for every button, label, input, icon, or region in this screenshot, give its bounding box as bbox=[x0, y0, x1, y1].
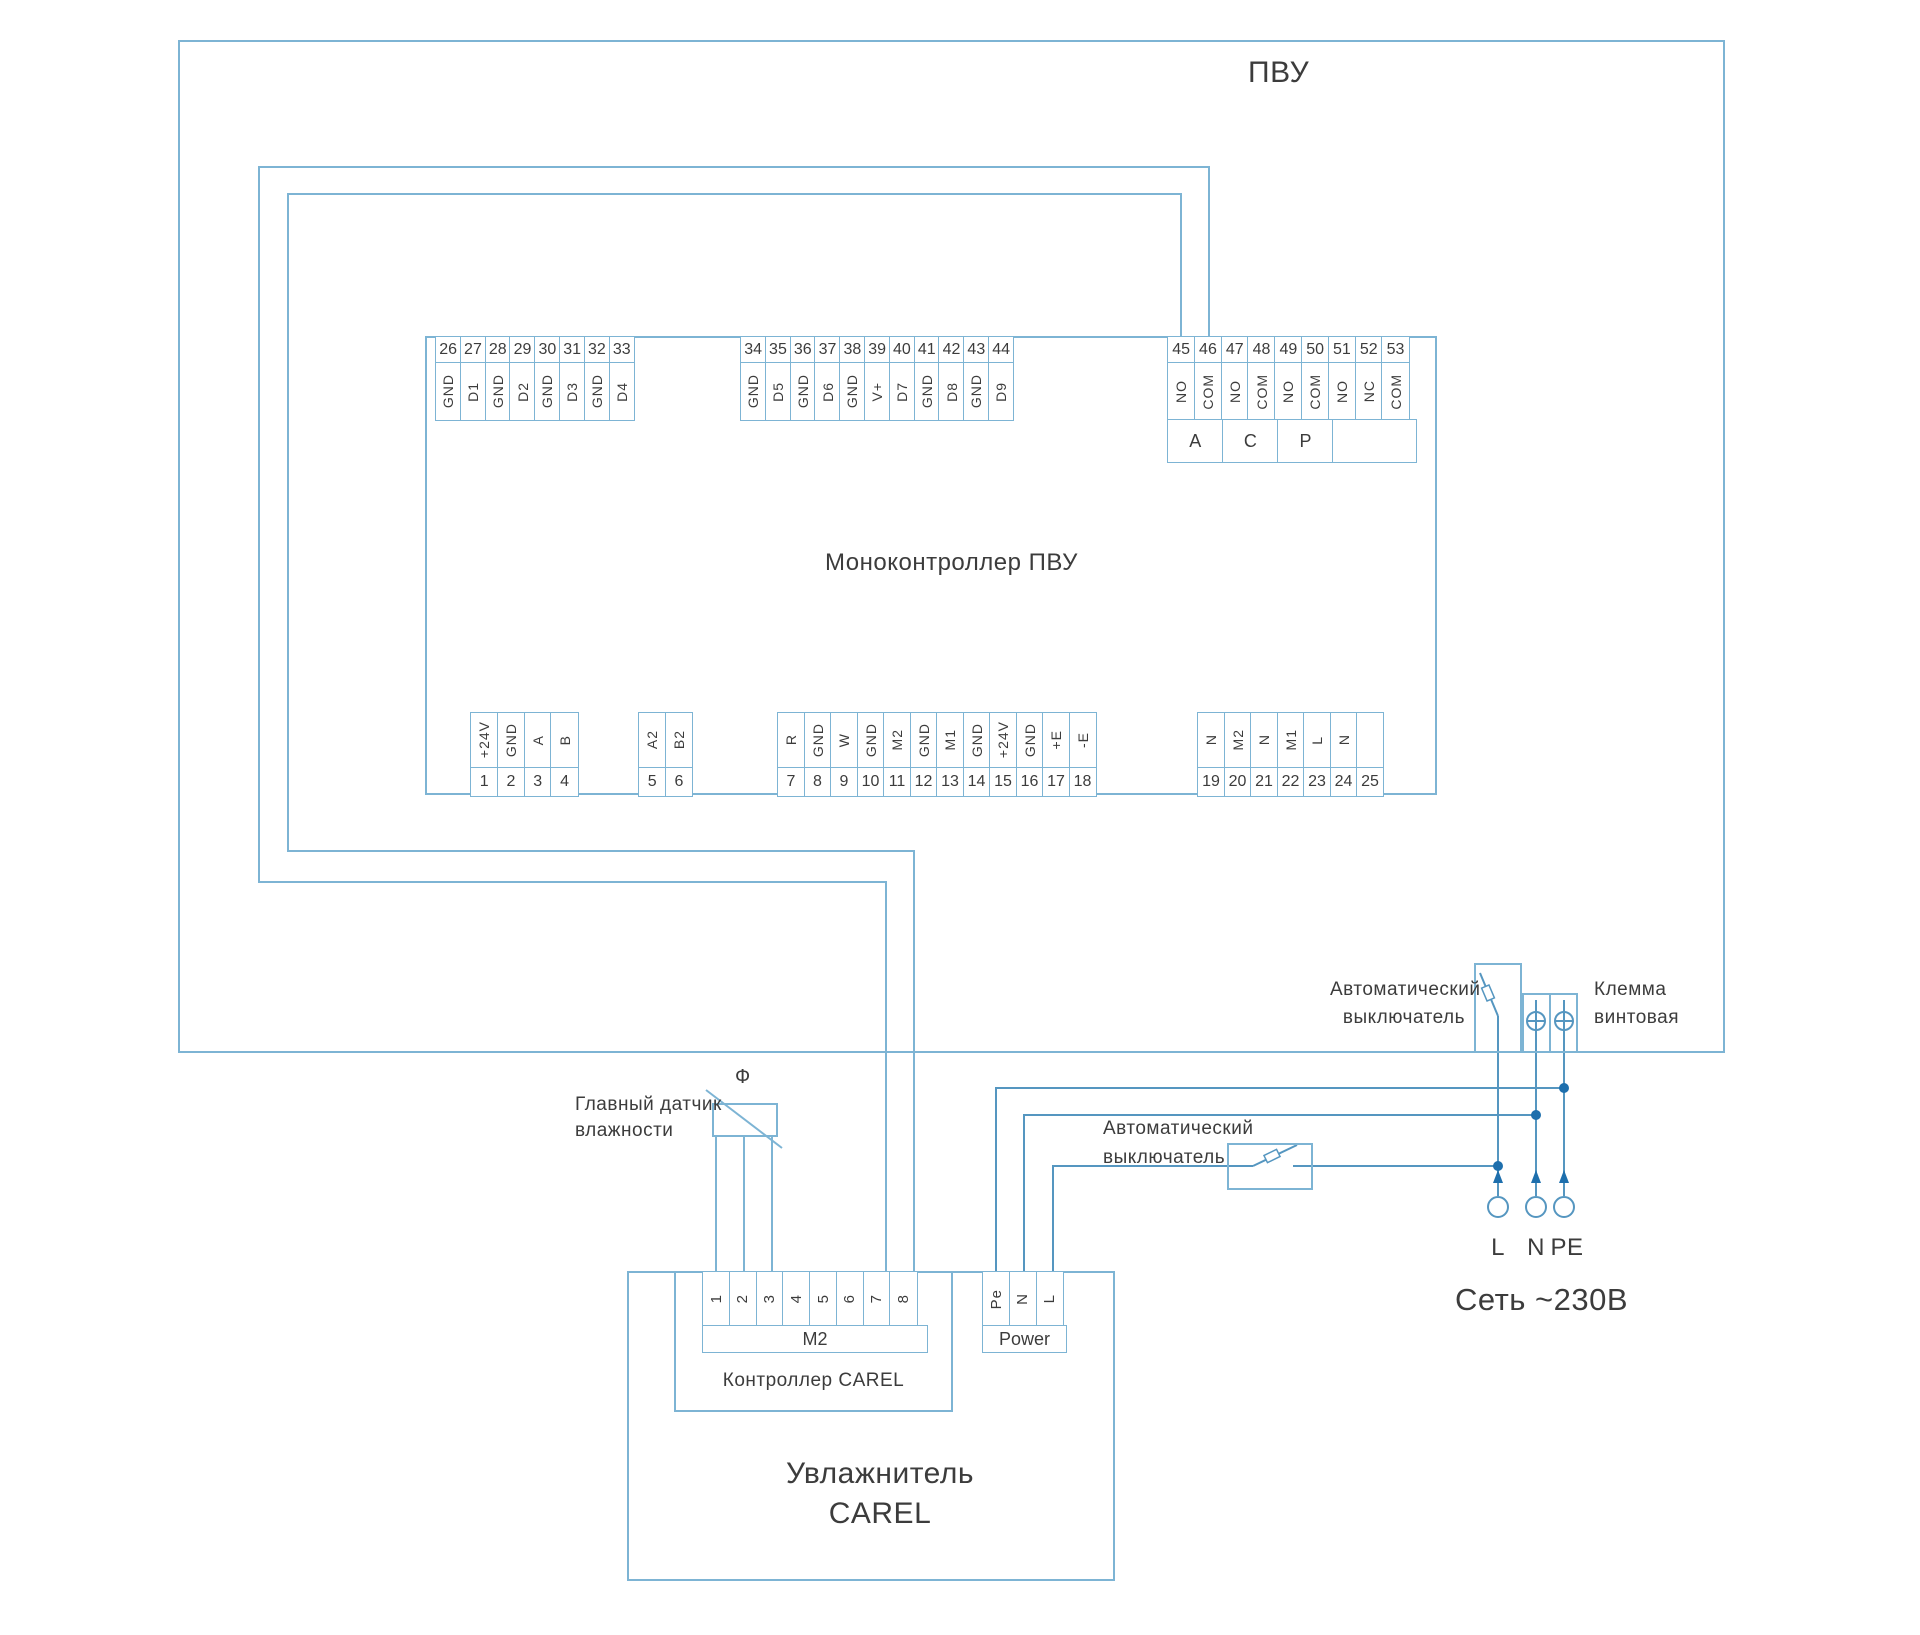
terminal-label: N bbox=[1198, 713, 1224, 768]
terminal-number-text: 10 bbox=[862, 773, 880, 791]
terminal-32: 32GND bbox=[584, 336, 610, 421]
terminal-label-text: GND bbox=[440, 374, 456, 408]
terminal-label: M2 bbox=[884, 713, 910, 768]
terminal-50: 50COM bbox=[1301, 336, 1329, 421]
terminal-label: GND bbox=[911, 713, 937, 768]
terminal-number-text: 41 bbox=[918, 341, 936, 359]
terminal-label-text: L bbox=[1041, 1294, 1058, 1303]
terminal-label-text: 3 bbox=[761, 1294, 778, 1303]
terminal-label-text: D6 bbox=[820, 382, 836, 402]
terminal-18: -E18 bbox=[1069, 712, 1097, 797]
terminal-label: GND bbox=[964, 363, 988, 420]
terminal-number-text: 4 bbox=[560, 773, 569, 791]
terminal-number-text: 16 bbox=[1021, 773, 1039, 791]
relay-group-A: A bbox=[1167, 419, 1224, 463]
junction-dot-l bbox=[1493, 1161, 1503, 1171]
humidity-sensor-symbol: Ф bbox=[735, 1066, 751, 1089]
terminal-12: GND12 bbox=[910, 712, 938, 797]
terminal-number-text: 37 bbox=[819, 341, 837, 359]
humidifier-breaker-label: Автоматический выключатель bbox=[1103, 1114, 1253, 1172]
terminal-number: 18 bbox=[1070, 768, 1096, 796]
terminal-label: M1 bbox=[1278, 713, 1304, 768]
terminal-number: 31 bbox=[560, 337, 584, 363]
terminal-label: NC bbox=[1356, 363, 1382, 420]
terminal-26: 26GND bbox=[435, 336, 461, 421]
monocontroller-label: Моноконтроллер ПВУ bbox=[825, 549, 1078, 577]
terminal-number-text: 21 bbox=[1255, 773, 1273, 791]
terminal-label: D1 bbox=[461, 363, 485, 420]
carel-m2-terminal-3: 3 bbox=[756, 1271, 784, 1327]
terminal-number: 26 bbox=[436, 337, 460, 363]
terminal-number: 47 bbox=[1222, 337, 1248, 363]
terminal-label-text: GND bbox=[968, 374, 984, 408]
humidifier-breaker-label-line2: выключатель bbox=[1103, 1143, 1253, 1172]
terminal-label-text: 8 bbox=[895, 1294, 912, 1303]
terminal-label: COM bbox=[1248, 363, 1274, 420]
terminal-46: 46COM bbox=[1194, 336, 1222, 421]
terminal-37: 37D6 bbox=[814, 336, 840, 421]
terminal-label: M1 bbox=[937, 713, 963, 768]
terminal-label: D3 bbox=[560, 363, 584, 420]
terminal-number-text: 22 bbox=[1282, 773, 1300, 791]
junction-dot-n bbox=[1531, 1110, 1541, 1120]
terminal-label: COM bbox=[1195, 363, 1221, 420]
pvu-title: ПВУ bbox=[1248, 56, 1309, 90]
terminal-label-text: COM bbox=[1388, 374, 1404, 410]
terminal-number-text: 9 bbox=[840, 773, 849, 791]
terminal-label: 1 bbox=[703, 1272, 729, 1326]
terminal-label-text: NO bbox=[1280, 380, 1296, 403]
terminal-31: 31D3 bbox=[559, 336, 585, 421]
terminal-label: GND bbox=[486, 363, 510, 420]
terminal-number-text: 49 bbox=[1279, 341, 1297, 359]
relay-group-P: P bbox=[1277, 419, 1334, 463]
terminal-block-1-4: +24V1GND2A3B4 bbox=[470, 712, 579, 797]
terminal-number-text: 42 bbox=[943, 341, 961, 359]
terminal-label-text: NO bbox=[1227, 380, 1243, 403]
terminal-number: 48 bbox=[1248, 337, 1274, 363]
terminal-number: 10 bbox=[858, 768, 884, 796]
terminal-number: 14 bbox=[964, 768, 990, 796]
terminal-45: 45NO bbox=[1167, 336, 1195, 421]
relay-group-C: C bbox=[1222, 419, 1279, 463]
terminal-label: V+ bbox=[865, 363, 889, 420]
terminal-label: 2 bbox=[730, 1272, 756, 1326]
terminal-number-text: 11 bbox=[889, 773, 906, 791]
terminal-number: 44 bbox=[989, 337, 1013, 363]
terminal-label-text: D9 bbox=[993, 382, 1009, 402]
terminal-4: B4 bbox=[550, 712, 578, 797]
terminal-number: 17 bbox=[1043, 768, 1069, 796]
terminal-label-text: D4 bbox=[614, 382, 630, 402]
terminal-label: GND bbox=[498, 713, 524, 768]
terminal-label-text: COM bbox=[1200, 374, 1216, 410]
terminal-label-text: +24V bbox=[995, 721, 1011, 758]
terminal-label-text: B2 bbox=[671, 730, 687, 749]
terminal-label-text: GND bbox=[589, 374, 605, 408]
terminal-29: 29D2 bbox=[509, 336, 535, 421]
terminal-label: NO bbox=[1275, 363, 1301, 420]
carel-power-terminal-L: L bbox=[1036, 1271, 1064, 1327]
terminal-22: M122 bbox=[1277, 712, 1305, 797]
terminal-label-text: N bbox=[1203, 734, 1219, 745]
terminal-number: 16 bbox=[1017, 768, 1043, 796]
terminal-number-text: 48 bbox=[1253, 341, 1271, 359]
terminal-label-text: M1 bbox=[942, 729, 958, 750]
terminal-label-text: +24V bbox=[476, 721, 492, 758]
screw-terminal-label: Клемма винтовая bbox=[1594, 976, 1679, 1032]
terminal-label: 7 bbox=[864, 1272, 890, 1326]
terminal-number: 42 bbox=[939, 337, 963, 363]
terminal-label: GND bbox=[791, 363, 815, 420]
terminal-6: B26 bbox=[665, 712, 693, 797]
terminal-label-text: GND bbox=[745, 374, 761, 408]
humidity-sensor-label: Главный датчик влажности bbox=[575, 1092, 722, 1144]
terminal-number: 53 bbox=[1382, 337, 1408, 363]
screw-terminal-label-line2: винтовая bbox=[1594, 1004, 1679, 1032]
terminal-number-text: 51 bbox=[1333, 341, 1351, 359]
terminal-number-text: 27 bbox=[464, 341, 482, 359]
terminal-number: 30 bbox=[535, 337, 559, 363]
terminal-number: 41 bbox=[915, 337, 939, 363]
terminal-number-text: 52 bbox=[1360, 341, 1378, 359]
terminal-number: 25 bbox=[1357, 768, 1383, 796]
terminal-label-text: Pe bbox=[988, 1289, 1005, 1309]
terminal-number: 34 bbox=[741, 337, 765, 363]
terminal-label: GND bbox=[840, 363, 864, 420]
terminal-10: GND10 bbox=[857, 712, 885, 797]
terminal-number-text: 14 bbox=[968, 773, 986, 791]
terminal-number-text: 23 bbox=[1308, 773, 1326, 791]
terminal-number-text: 39 bbox=[868, 341, 886, 359]
terminal-number-text: 25 bbox=[1361, 773, 1379, 791]
carel-controller-label: Контроллер CAREL bbox=[674, 1370, 953, 1392]
terminal-label: 4 bbox=[783, 1272, 809, 1326]
screw-terminal-label-line1: Клемма bbox=[1594, 976, 1679, 1004]
terminal-number: 36 bbox=[791, 337, 815, 363]
terminal-label: N bbox=[1010, 1272, 1036, 1326]
terminal-label-text: D1 bbox=[465, 382, 481, 402]
terminal-label: D4 bbox=[610, 363, 634, 420]
terminal-number: 1 bbox=[471, 768, 497, 796]
terminal-number: 27 bbox=[461, 337, 485, 363]
terminal-34: 34GND bbox=[740, 336, 766, 421]
humidifier-name-line1: Увлажнитель bbox=[636, 1454, 1124, 1494]
terminal-number: 20 bbox=[1225, 768, 1251, 796]
terminal-label-text: M1 bbox=[1283, 729, 1299, 750]
terminal-13: M113 bbox=[936, 712, 964, 797]
terminal-label-text: GND bbox=[969, 723, 985, 757]
terminal-label: M2 bbox=[1225, 713, 1251, 768]
terminal-number: 6 bbox=[666, 768, 692, 796]
terminal-30: 30GND bbox=[534, 336, 560, 421]
terminal-number: 33 bbox=[610, 337, 634, 363]
terminal-21: N21 bbox=[1250, 712, 1278, 797]
terminal-label: GND bbox=[741, 363, 765, 420]
terminal-label-text: N bbox=[1256, 734, 1272, 745]
mains-terminal-label-l: L bbox=[1491, 1234, 1505, 1262]
terminal-number-text: 40 bbox=[893, 341, 911, 359]
terminal-label-text: 7 bbox=[868, 1294, 885, 1303]
terminal-label: D2 bbox=[510, 363, 534, 420]
terminal-block-26-33: 26GND27D128GND29D230GND31D332GND33D4 bbox=[435, 336, 635, 421]
terminal-label-text: M2 bbox=[889, 729, 905, 750]
terminal-label: GND bbox=[858, 713, 884, 768]
terminal-35: 35D5 bbox=[765, 336, 791, 421]
terminal-label-text: GND bbox=[919, 374, 935, 408]
carel-power-terminal-N: N bbox=[1009, 1271, 1037, 1327]
terminal-label: COM bbox=[1382, 363, 1408, 420]
terminal-27: 27D1 bbox=[460, 336, 486, 421]
terminal-number-text: 33 bbox=[613, 341, 631, 359]
terminal-label: NO bbox=[1329, 363, 1355, 420]
terminal-number-text: 44 bbox=[992, 341, 1010, 359]
terminal-number-text: 35 bbox=[769, 341, 787, 359]
terminal-16: GND16 bbox=[1016, 712, 1044, 797]
terminal-number-text: 31 bbox=[563, 341, 581, 359]
carel-m2-row-label-text: M2 bbox=[802, 1329, 827, 1350]
terminal-40: 40D7 bbox=[889, 336, 915, 421]
terminal-number-text: 53 bbox=[1387, 341, 1405, 359]
pvu-wiring-diagram: ПВУ Моноконтроллер ПВУ Автоматический вы… bbox=[0, 0, 1920, 1635]
terminal-number: 8 bbox=[805, 768, 831, 796]
terminal-17: +E17 bbox=[1042, 712, 1070, 797]
terminal-label: A2 bbox=[639, 713, 665, 768]
terminal-label: R bbox=[778, 713, 804, 768]
carel-power-terminal-Pe: Pe bbox=[982, 1271, 1010, 1327]
terminal-number: 32 bbox=[585, 337, 609, 363]
terminal-number-text: 30 bbox=[538, 341, 556, 359]
terminal-number: 12 bbox=[911, 768, 937, 796]
terminal-label-text: W bbox=[836, 733, 852, 747]
carel-m2-terminal-7: 7 bbox=[863, 1271, 891, 1327]
terminal-number-text: 5 bbox=[648, 773, 657, 791]
terminal-label: D7 bbox=[890, 363, 914, 420]
terminal-block-5-6: A25B26 bbox=[638, 712, 693, 797]
terminal-number: 5 bbox=[639, 768, 665, 796]
terminal-number: 51 bbox=[1329, 337, 1355, 363]
terminal-number: 2 bbox=[498, 768, 524, 796]
terminal-label: L bbox=[1037, 1272, 1063, 1326]
terminal-label-text: B bbox=[557, 735, 573, 745]
terminal-number-text: 18 bbox=[1074, 773, 1092, 791]
terminal-label-text: GND bbox=[539, 374, 555, 408]
terminal-label-text: L bbox=[1309, 736, 1325, 745]
terminal-number: 9 bbox=[831, 768, 857, 796]
terminal-label: GND bbox=[915, 363, 939, 420]
terminal-15: +24V15 bbox=[989, 712, 1017, 797]
terminal-number: 28 bbox=[486, 337, 510, 363]
mains-terminal-label-pe: PE bbox=[1550, 1234, 1583, 1262]
terminal-label: D9 bbox=[989, 363, 1013, 420]
relay-group-label: C bbox=[1244, 431, 1257, 452]
main-breaker-label-line1: Автоматический bbox=[1330, 976, 1465, 1004]
terminal-2: GND2 bbox=[497, 712, 525, 797]
carel-power-terminal-block: PeNL bbox=[982, 1271, 1064, 1327]
terminal-33: 33D4 bbox=[609, 336, 635, 421]
terminal-number: 11 bbox=[884, 768, 910, 796]
humidity-sensor-label-line1: Главный датчик bbox=[575, 1092, 722, 1118]
terminal-label-text: GND bbox=[795, 374, 811, 408]
terminal-43: 43GND bbox=[963, 336, 989, 421]
terminal-label-text: 2 bbox=[734, 1294, 751, 1303]
terminal-number: 22 bbox=[1278, 768, 1304, 796]
terminal-number-text: 8 bbox=[813, 773, 822, 791]
terminal-label: GND bbox=[436, 363, 460, 420]
terminal-52: 52NC bbox=[1355, 336, 1383, 421]
terminal-label-text: COM bbox=[1254, 374, 1270, 410]
terminal-label: GND bbox=[1017, 713, 1043, 768]
terminal-label: N bbox=[1251, 713, 1277, 768]
terminal-number-text: 19 bbox=[1202, 773, 1220, 791]
terminal-label: A bbox=[525, 713, 551, 768]
terminal-label-text: +E bbox=[1048, 730, 1064, 750]
terminal-42: 42D8 bbox=[938, 336, 964, 421]
carel-m2-terminal-8: 8 bbox=[889, 1271, 917, 1327]
terminal-53: 53COM bbox=[1381, 336, 1409, 421]
terminal-label-text: 6 bbox=[841, 1294, 858, 1303]
terminal-label-text: COM bbox=[1307, 374, 1323, 410]
mains-voltage-label: Сеть ~230В bbox=[1455, 1282, 1628, 1318]
terminal-label-text: N bbox=[1336, 734, 1352, 745]
mains-terminal-label-n: N bbox=[1527, 1234, 1545, 1262]
carel-m2-terminal-6: 6 bbox=[836, 1271, 864, 1327]
terminal-label-text: R bbox=[783, 734, 799, 745]
terminal-47: 47NO bbox=[1221, 336, 1249, 421]
terminal-23: L23 bbox=[1303, 712, 1331, 797]
carel-m2-row-label: M2 bbox=[702, 1325, 928, 1353]
terminal-38: 38GND bbox=[839, 336, 865, 421]
terminal-label: NO bbox=[1168, 363, 1194, 420]
terminal-block-45-53: 45NO46COM47NO48COM49NO50COM51NO52NC53COM bbox=[1167, 336, 1410, 421]
terminal-number-text: 17 bbox=[1047, 773, 1065, 791]
terminal-7: R7 bbox=[777, 712, 805, 797]
terminal-label: 8 bbox=[890, 1272, 916, 1326]
terminal-label: 3 bbox=[757, 1272, 783, 1326]
terminal-number: 40 bbox=[890, 337, 914, 363]
wire-l-left bbox=[1053, 1166, 1253, 1271]
terminal-number: 38 bbox=[840, 337, 864, 363]
terminal-label-text: A bbox=[530, 735, 546, 745]
terminal-label: COM bbox=[1302, 363, 1328, 420]
terminal-11: M211 bbox=[883, 712, 911, 797]
terminal-number: 21 bbox=[1251, 768, 1277, 796]
relay-group-label: P bbox=[1299, 431, 1311, 452]
terminal-label-text: 5 bbox=[815, 1294, 832, 1303]
terminal-label-text: GND bbox=[916, 723, 932, 757]
terminal-number: 13 bbox=[937, 768, 963, 796]
terminal-label-text: D7 bbox=[894, 382, 910, 402]
terminal-number-text: 15 bbox=[994, 773, 1012, 791]
terminal-number-text: 3 bbox=[533, 773, 542, 791]
terminal-label-text: GND bbox=[810, 723, 826, 757]
mains-terminal-circle-l bbox=[1488, 1197, 1508, 1217]
terminal-number: 24 bbox=[1331, 768, 1357, 796]
terminal-number-text: 50 bbox=[1306, 341, 1324, 359]
terminal-number: 15 bbox=[990, 768, 1016, 796]
terminal-label-text: GND bbox=[503, 723, 519, 757]
terminal-41: 41GND bbox=[914, 336, 940, 421]
terminal-number: 52 bbox=[1356, 337, 1382, 363]
terminal-label: GND bbox=[535, 363, 559, 420]
carel-m2-terminal-2: 2 bbox=[729, 1271, 757, 1327]
terminal-label-text: GND bbox=[490, 374, 506, 408]
terminal-label: GND bbox=[805, 713, 831, 768]
relay-group-label: A bbox=[1189, 431, 1201, 452]
carel-m2-terminal-4: 4 bbox=[782, 1271, 810, 1327]
carel-m2-terminal-block: 12345678 bbox=[702, 1271, 918, 1327]
terminal-label-text: D3 bbox=[564, 382, 580, 402]
terminal-label-text: N bbox=[1014, 1293, 1031, 1305]
terminal-label-text: NO bbox=[1334, 380, 1350, 403]
terminal-number: 46 bbox=[1195, 337, 1221, 363]
terminal-number-text: 45 bbox=[1172, 341, 1190, 359]
terminal-number: 3 bbox=[525, 768, 551, 796]
terminal-label-text: A2 bbox=[644, 730, 660, 749]
terminal-number-text: 32 bbox=[588, 341, 606, 359]
terminal-label: N bbox=[1331, 713, 1357, 768]
terminal-number: 43 bbox=[964, 337, 988, 363]
terminal-14: GND14 bbox=[963, 712, 991, 797]
terminal-number: 23 bbox=[1304, 768, 1330, 796]
main-breaker-label: Автоматический выключатель bbox=[1330, 976, 1465, 1032]
terminal-number-text: 36 bbox=[794, 341, 812, 359]
terminal-number-text: 43 bbox=[967, 341, 985, 359]
carel-m2-terminal-5: 5 bbox=[809, 1271, 837, 1327]
wire-n bbox=[1024, 1115, 1536, 1271]
terminal-28: 28GND bbox=[485, 336, 511, 421]
terminal-label: NO bbox=[1222, 363, 1248, 420]
terminal-label-text: 1 bbox=[708, 1294, 725, 1303]
terminal-number: 37 bbox=[815, 337, 839, 363]
terminal-label: D6 bbox=[815, 363, 839, 420]
terminal-block-7-18: R7GND8W9GND10M211GND12M113GND14+24V15GND… bbox=[777, 712, 1097, 797]
humidifier-name-line2: CAREL bbox=[636, 1494, 1124, 1534]
terminal-label bbox=[1357, 713, 1383, 768]
terminal-49: 49NO bbox=[1274, 336, 1302, 421]
terminal-label: W bbox=[831, 713, 857, 768]
carel-power-row-label-text: Power bbox=[999, 1329, 1050, 1350]
terminal-label: GND bbox=[964, 713, 990, 768]
terminal-label: -E bbox=[1070, 713, 1096, 768]
terminal-label: D8 bbox=[939, 363, 963, 420]
screw-terminal-box bbox=[1522, 993, 1578, 1053]
terminal-number-text: 26 bbox=[439, 341, 457, 359]
terminal-1: +24V1 bbox=[470, 712, 498, 797]
terminal-20: M220 bbox=[1224, 712, 1252, 797]
terminal-number-text: 13 bbox=[941, 773, 959, 791]
terminal-number-text: 24 bbox=[1335, 773, 1353, 791]
terminal-label-text: GND bbox=[863, 723, 879, 757]
terminal-24: N24 bbox=[1330, 712, 1358, 797]
terminal-number: 7 bbox=[778, 768, 804, 796]
terminal-36: 36GND bbox=[790, 336, 816, 421]
mains-terminal-circle-pe bbox=[1554, 1197, 1574, 1217]
terminal-number: 45 bbox=[1168, 337, 1194, 363]
terminal-label: +24V bbox=[471, 713, 497, 768]
terminal-3: A3 bbox=[524, 712, 552, 797]
main-breaker-box bbox=[1474, 963, 1522, 1053]
terminal-number-text: 47 bbox=[1226, 341, 1244, 359]
terminal-number-text: 38 bbox=[843, 341, 861, 359]
terminal-label: B bbox=[551, 713, 577, 768]
terminal-number: 50 bbox=[1302, 337, 1328, 363]
main-breaker-label-line2: выключатель bbox=[1330, 1004, 1465, 1032]
terminal-9: W9 bbox=[830, 712, 858, 797]
terminal-number: 4 bbox=[551, 768, 577, 796]
terminal-label-text: -E bbox=[1075, 732, 1091, 748]
terminal-label: +24V bbox=[990, 713, 1016, 768]
